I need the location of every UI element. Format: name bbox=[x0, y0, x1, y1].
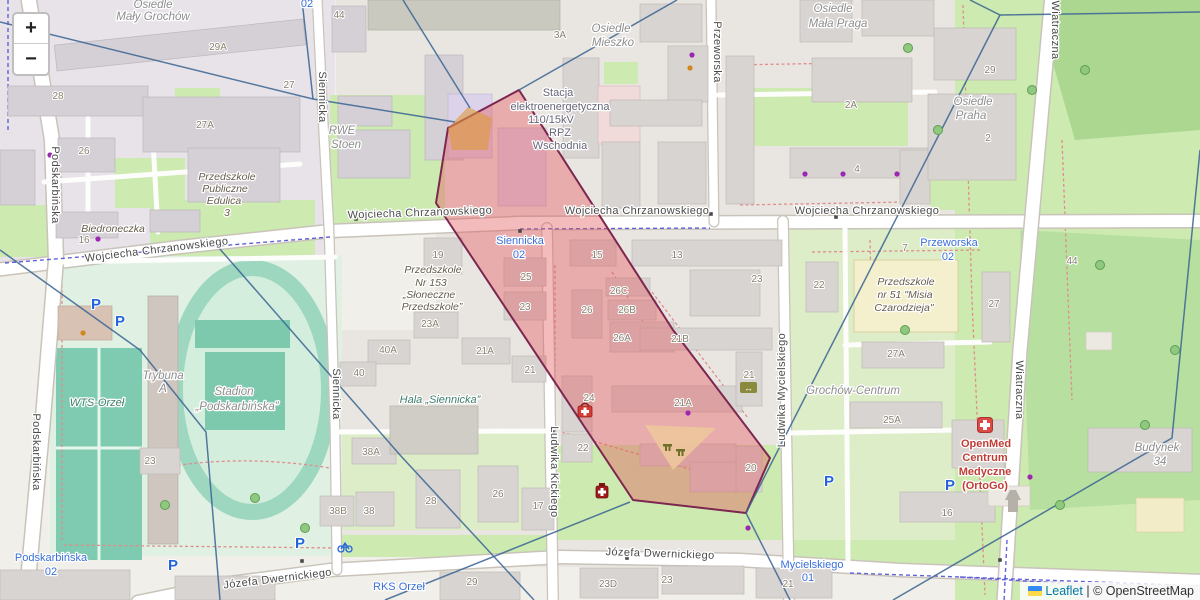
map-label: Osiedle bbox=[814, 3, 853, 15]
map-label: Wojciecha Chrzanowskiego bbox=[795, 205, 940, 217]
map-label: 02 bbox=[301, 0, 313, 10]
poi-dot bbox=[894, 171, 899, 176]
map-label: Ludwika Kickiego bbox=[548, 426, 560, 517]
tree-icon bbox=[934, 126, 943, 135]
map-label: 23 bbox=[751, 274, 763, 285]
tree-icon bbox=[1141, 421, 1150, 430]
map-label: RKS Orzeł bbox=[373, 581, 426, 593]
map-label: WTS-Orzeł bbox=[70, 397, 125, 409]
map-label: Wiatraczna bbox=[1013, 360, 1025, 419]
map-label: Siennicka bbox=[496, 235, 545, 247]
map-label: 38 bbox=[363, 506, 375, 517]
tree-icon bbox=[904, 44, 913, 53]
map-label: 27A bbox=[887, 349, 905, 360]
stop-marker bbox=[709, 212, 713, 216]
map-label: Trybuna bbox=[142, 370, 183, 382]
ukraine-flag-icon bbox=[1028, 586, 1042, 596]
map-label: 25A bbox=[883, 415, 901, 426]
map-label: 22 bbox=[813, 280, 825, 291]
map-label: 13 bbox=[671, 250, 683, 261]
map-label: 23D bbox=[599, 579, 617, 590]
map-label: 21A bbox=[674, 398, 692, 409]
map-label: 7 bbox=[902, 243, 908, 254]
poi-dot bbox=[840, 171, 845, 176]
map-label: 21B bbox=[671, 334, 689, 345]
clinic-cross-icon[interactable] bbox=[978, 418, 993, 433]
map-label: 22 bbox=[577, 443, 589, 454]
stop-marker bbox=[518, 229, 522, 233]
tree-icon bbox=[1056, 501, 1065, 510]
map-label: Podskarbińska bbox=[15, 552, 88, 564]
map-label: 23 bbox=[144, 456, 156, 467]
map-label: 26 bbox=[492, 489, 504, 500]
map-label: „Podskarbińska” bbox=[194, 401, 279, 413]
map-label: Wojciecha Chrzanowskiego bbox=[565, 205, 710, 217]
map-label: 4 bbox=[854, 164, 860, 175]
map-label: A bbox=[158, 383, 167, 395]
attribution-bar: Leaflet | © OpenStreetMap bbox=[1020, 582, 1200, 600]
map-label: Podskarbińska bbox=[30, 413, 42, 491]
map-label: 27 bbox=[988, 299, 1000, 310]
map-label: „Słoneczne bbox=[402, 289, 456, 301]
map-label: Medyczne bbox=[959, 466, 1012, 478]
map-label: Publiczne bbox=[202, 183, 248, 195]
map-label: 38A bbox=[362, 447, 380, 458]
map-label: 2 bbox=[985, 133, 991, 144]
map-label: nr 51 "Misia bbox=[877, 289, 932, 301]
poi-dot bbox=[1027, 474, 1032, 479]
map-label: Praha bbox=[956, 110, 987, 122]
tree-icon bbox=[901, 326, 910, 335]
tree-icon bbox=[251, 494, 260, 503]
parking-icon: P bbox=[91, 296, 101, 313]
map-label: 16 bbox=[78, 235, 90, 246]
map-label: Stacja bbox=[543, 87, 574, 99]
tree-icon bbox=[161, 501, 170, 510]
map-label: 44 bbox=[1066, 256, 1078, 267]
map-label: 28 bbox=[52, 91, 64, 102]
osm-attribution: © OpenStreetMap bbox=[1093, 584, 1194, 598]
map-label: Czarodzieja" bbox=[874, 302, 934, 314]
map-label: 01 bbox=[802, 572, 814, 584]
map-label: 29 bbox=[466, 577, 478, 588]
tree-icon bbox=[1028, 86, 1037, 95]
map-label: elektroenergetyczna bbox=[510, 101, 610, 113]
map-label: Wiatraczna bbox=[1049, 0, 1061, 59]
map-label: Osiedle bbox=[134, 0, 173, 11]
poi-dot bbox=[80, 330, 85, 335]
map-label: 2A bbox=[845, 100, 858, 111]
map-label: 17 bbox=[532, 501, 544, 512]
map-label: Wschodnia bbox=[533, 140, 588, 152]
map-label: 19 bbox=[432, 250, 444, 261]
map-label: 40 bbox=[353, 368, 365, 379]
map-label: (OrtoGo) bbox=[962, 480, 1008, 492]
zoom-out-button[interactable]: − bbox=[14, 44, 48, 74]
map-label: 02 bbox=[513, 249, 525, 261]
map-label: 44 bbox=[333, 10, 345, 21]
map-label: Siennicka bbox=[330, 368, 342, 420]
map-label: 38B bbox=[329, 506, 347, 517]
map-label: 24 bbox=[583, 393, 595, 404]
map-label: 26 bbox=[581, 305, 593, 316]
zoom-control: + − bbox=[12, 12, 50, 76]
map-label: Siennicka bbox=[316, 71, 328, 123]
map-label: Mycielskiego bbox=[781, 559, 844, 571]
map-label: Grochów-Centrum bbox=[806, 385, 900, 397]
poi-dot bbox=[745, 525, 750, 530]
map-label: 3A bbox=[554, 30, 567, 41]
map-label: 34 bbox=[1154, 456, 1167, 468]
parking-icon: P bbox=[945, 477, 955, 494]
poi-dot bbox=[802, 171, 807, 176]
tree-icon bbox=[1081, 66, 1090, 75]
map-label: 28 bbox=[425, 496, 437, 507]
poi-dot bbox=[689, 52, 694, 57]
map-label: 29A bbox=[209, 42, 227, 53]
parking-icon: P bbox=[824, 473, 834, 490]
map-label: 15 bbox=[591, 250, 603, 261]
map-label: Biedroneczka bbox=[81, 223, 145, 235]
poi-dot bbox=[685, 410, 690, 415]
svg-text:↔: ↔ bbox=[744, 383, 753, 393]
map-label: 21 bbox=[743, 370, 755, 381]
map-label: 23 bbox=[519, 302, 531, 313]
map-label: 26 bbox=[78, 146, 90, 157]
map-label: OpenMed bbox=[961, 438, 1011, 450]
parking-icon: P bbox=[168, 557, 178, 574]
map-label: 21 bbox=[524, 365, 536, 376]
map-label: Przedszkole” bbox=[402, 301, 463, 313]
sports-hall-building bbox=[390, 406, 478, 454]
map-viewport[interactable]: ↔ Wojciecha ChrzanowskiegoWojciecha Chrz… bbox=[0, 0, 1200, 600]
map-label: 26C bbox=[610, 286, 628, 297]
poi-dot bbox=[95, 236, 100, 241]
map-label: 26B bbox=[618, 305, 636, 316]
map-label: 27A bbox=[196, 120, 214, 131]
map-label: Centrum bbox=[962, 452, 1007, 464]
map-label: Hala „Siennicka” bbox=[400, 394, 482, 406]
map-label: 25 bbox=[520, 272, 532, 283]
map-label: Stadion bbox=[214, 386, 253, 398]
map-label: Mała Praga bbox=[809, 18, 868, 30]
map-label: Budynek bbox=[1135, 442, 1181, 454]
map-label: 29 bbox=[984, 65, 996, 76]
map-label: 27 bbox=[283, 80, 295, 91]
map-label: Ludwika Mycielskiego bbox=[776, 333, 788, 447]
tree-icon bbox=[1096, 261, 1105, 270]
map-canvas[interactable]: ↔ Wojciecha ChrzanowskiegoWojciecha Chrz… bbox=[0, 0, 1200, 600]
map-label: 20 bbox=[745, 463, 757, 474]
map-label: RWE bbox=[329, 125, 356, 137]
map-label: Mieszko bbox=[592, 37, 635, 49]
map-label: Podskarbińska bbox=[49, 146, 61, 224]
map-label: 26A bbox=[613, 333, 631, 344]
map-label: 16 bbox=[941, 508, 953, 519]
map-label: Przedszkole bbox=[877, 276, 934, 288]
stop-marker bbox=[998, 558, 1002, 562]
attribution-separator: | bbox=[1086, 584, 1089, 598]
map-label: Przedszkole bbox=[198, 171, 255, 183]
map-label: Osiedle bbox=[592, 23, 631, 35]
leaflet-link[interactable]: Leaflet bbox=[1045, 584, 1083, 598]
map-label: Przedszkole bbox=[404, 264, 461, 276]
zoom-in-button[interactable]: + bbox=[14, 14, 48, 44]
map-label: Mały Grochów bbox=[116, 11, 190, 23]
map-label: RPZ bbox=[549, 127, 571, 139]
map-label: Nr 153 bbox=[415, 277, 447, 289]
map-label: 110/15kV bbox=[528, 114, 574, 126]
map-label: 02 bbox=[45, 566, 57, 578]
map-label: 02 bbox=[942, 251, 954, 263]
map-label: Przeworska bbox=[711, 21, 723, 83]
elevator-icon: ↔ bbox=[740, 382, 757, 393]
map-label: Edulica bbox=[207, 195, 242, 207]
map-label: 40A bbox=[379, 345, 397, 356]
map-label: Stoen bbox=[331, 139, 361, 151]
map-label: 3 bbox=[224, 207, 230, 219]
poi-dot bbox=[687, 65, 692, 70]
map-label: 23A bbox=[421, 319, 439, 330]
parking-icon: P bbox=[115, 313, 125, 330]
tree-icon bbox=[301, 524, 310, 533]
map-label: 23 bbox=[661, 575, 673, 586]
map-label: 21A bbox=[476, 346, 494, 357]
tree-icon bbox=[1171, 346, 1180, 355]
map-label: Przeworska bbox=[920, 237, 978, 249]
map-label: Osiedle bbox=[954, 96, 993, 108]
parking-icon: P bbox=[295, 535, 305, 552]
map-label: 21 bbox=[782, 579, 794, 590]
stop-marker bbox=[300, 559, 304, 563]
